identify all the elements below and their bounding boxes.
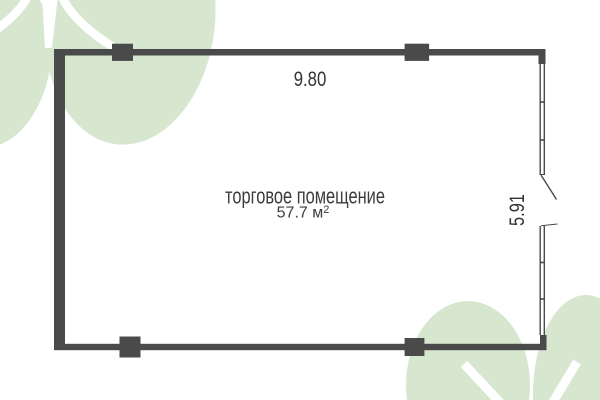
svg-text:5.91: 5.91 [505, 194, 528, 226]
svg-text:57.7 м2: 57.7 м2 [277, 204, 330, 222]
svg-text:9.80: 9.80 [294, 68, 327, 91]
